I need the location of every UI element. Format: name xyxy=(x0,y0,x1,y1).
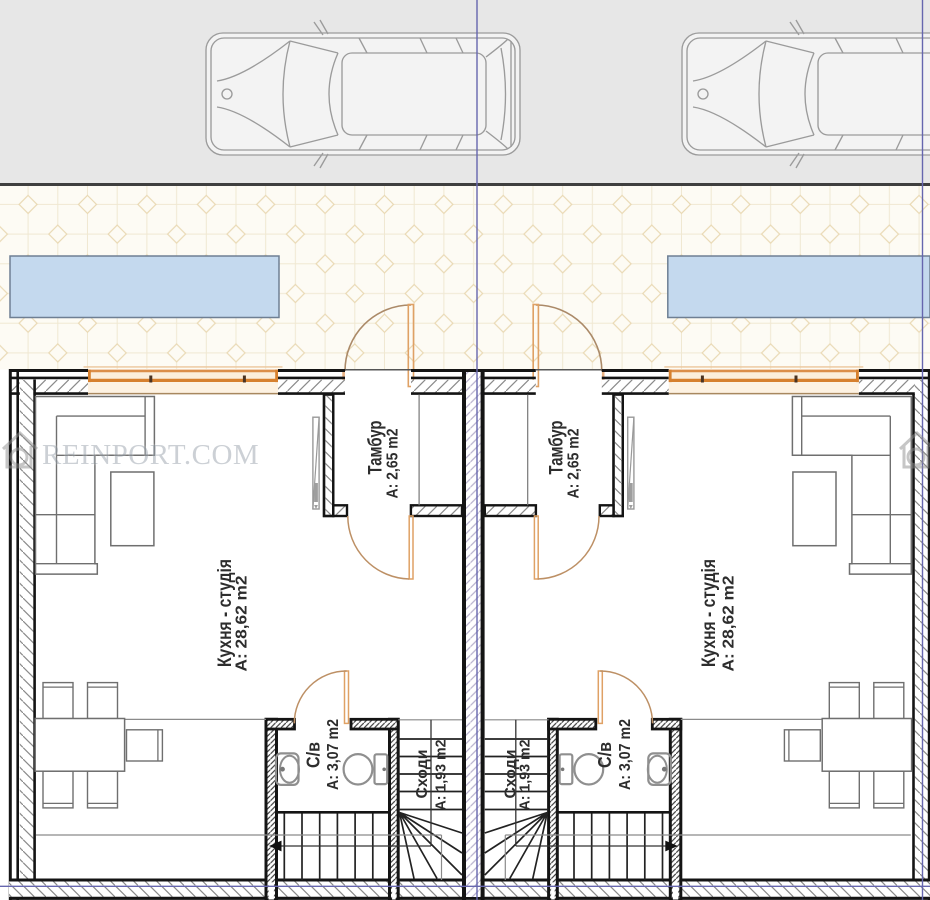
svg-text:С/в: С/в xyxy=(304,742,324,768)
svg-text:А: 3,07 m2: А: 3,07 m2 xyxy=(617,719,634,790)
svg-text:А: 2,65 m2: А: 2,65 m2 xyxy=(566,429,583,499)
svg-text:Сходи: Сходи xyxy=(414,750,431,799)
svg-text:Тамбур: Тамбур xyxy=(547,421,568,475)
svg-text:А: 1,93 m2: А: 1,93 m2 xyxy=(433,740,450,811)
svg-text:С/в: С/в xyxy=(595,742,615,768)
svg-text:Тамбур: Тамбур xyxy=(366,421,387,475)
svg-text:А: 3,07 m2: А: 3,07 m2 xyxy=(325,719,342,790)
svg-text:А: 2,65 m2: А: 2,65 m2 xyxy=(385,429,402,499)
svg-text:Кухня - студія: Кухня - студія xyxy=(699,559,720,667)
svg-text:А: 1,93 m2: А: 1,93 m2 xyxy=(517,740,534,811)
svg-text:А: 28,62 m2: А: 28,62 m2 xyxy=(721,576,738,672)
svg-text:А: 28,62 m2: А: 28,62 m2 xyxy=(234,576,251,672)
